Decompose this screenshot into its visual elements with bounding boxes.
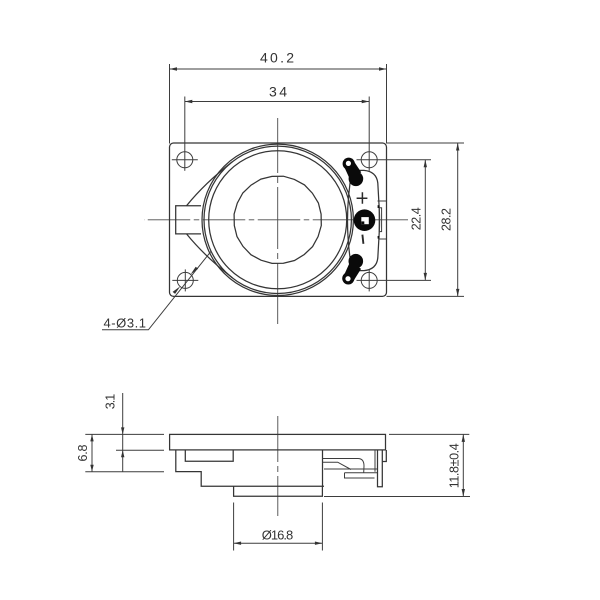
svg-text:40.2: 40.2 bbox=[260, 50, 294, 66]
svg-text:4-Ø3.1: 4-Ø3.1 bbox=[104, 316, 147, 331]
svg-text:28.2: 28.2 bbox=[440, 208, 454, 231]
svg-text:Ø16.8: Ø16.8 bbox=[262, 528, 294, 543]
svg-text:3.1: 3.1 bbox=[104, 394, 118, 410]
svg-text:22.4: 22.4 bbox=[410, 207, 424, 230]
svg-text:6.8: 6.8 bbox=[76, 444, 90, 461]
svg-text:34: 34 bbox=[269, 84, 287, 100]
svg-text:11.8±0.4: 11.8±0.4 bbox=[447, 443, 461, 488]
